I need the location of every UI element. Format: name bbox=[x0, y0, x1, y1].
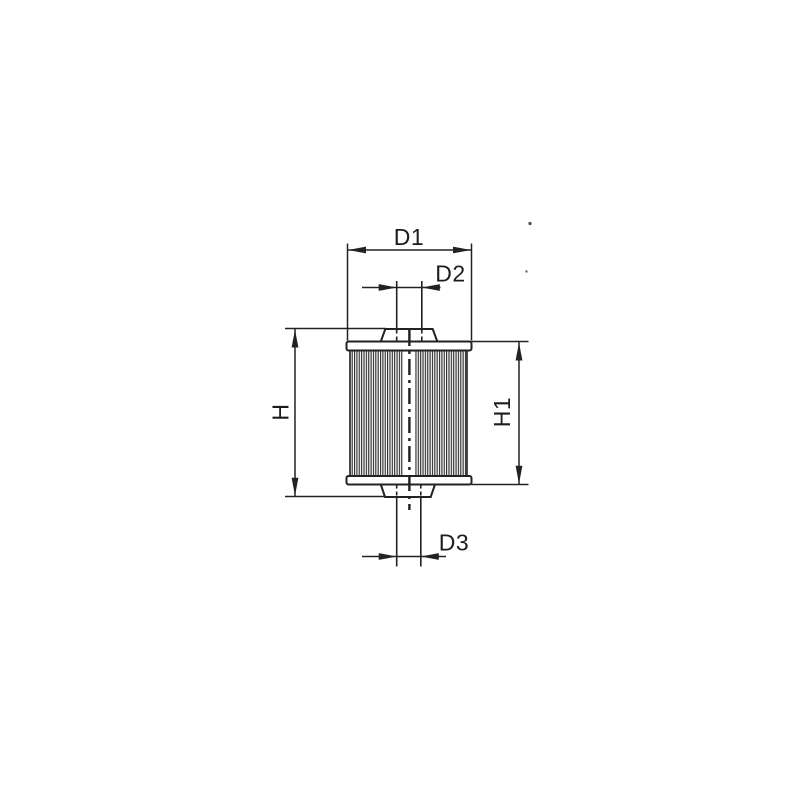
filter-cartridge-drawing: D1 D2 D3 H H1 bbox=[0, 0, 800, 800]
scan-speck-2 bbox=[525, 270, 527, 272]
h1-label: H1 bbox=[489, 397, 515, 427]
h1-arrowhead-top bbox=[516, 343, 523, 361]
d1-label: D1 bbox=[394, 224, 424, 250]
d2-label: D2 bbox=[435, 261, 465, 287]
scan-speck-1 bbox=[528, 222, 531, 225]
d1-arrowhead-left bbox=[348, 247, 366, 254]
filter-element bbox=[347, 329, 472, 497]
dimension-d2: D2 bbox=[362, 261, 466, 330]
d3-label: D3 bbox=[439, 530, 469, 556]
bottom-boss bbox=[381, 485, 435, 498]
h-arrowhead-top bbox=[292, 330, 299, 348]
d2-arrowhead-left bbox=[379, 284, 397, 291]
h-label: H bbox=[268, 403, 294, 420]
technical-drawing-canvas: D1 D2 D3 H H1 bbox=[0, 0, 800, 800]
dimension-d3: D3 bbox=[362, 497, 469, 567]
dimension-h1: H1 bbox=[472, 342, 529, 485]
d3-arrowhead-right bbox=[421, 553, 439, 560]
h1-arrowhead-bottom bbox=[516, 466, 523, 484]
d1-arrowhead-right bbox=[453, 247, 471, 254]
h-arrowhead-bottom bbox=[292, 478, 299, 496]
scan-specks bbox=[525, 222, 531, 273]
d3-arrowhead-left bbox=[379, 553, 397, 560]
